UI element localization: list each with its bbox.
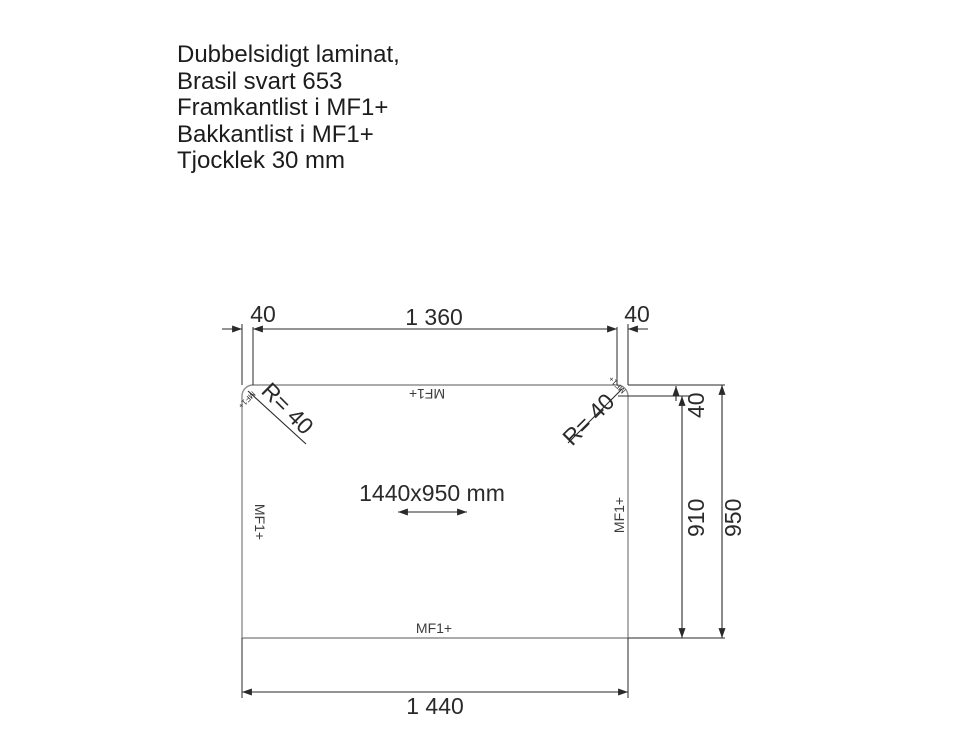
dim-top-width-label: 1 360: [405, 304, 463, 330]
drawing-sheet: Dubbelsidigt laminat, Brasil svart 653 F…: [0, 0, 960, 735]
corner-left-band-mark: MF1+: [236, 389, 257, 410]
edge-band-right-label: MF1+: [611, 497, 627, 533]
technical-drawing: 40 1 360 40 40 910 950 1 440 1440x950 mm…: [0, 0, 960, 735]
dim-910-label: 910: [683, 499, 709, 537]
radius-left-label: R= 40: [257, 377, 319, 439]
dim-950-label: 950: [720, 499, 746, 537]
dim-right-40-label: 40: [683, 392, 709, 418]
dim-bottom-width-label: 1 440: [406, 693, 464, 719]
edge-band-bottom-label: MF1+: [416, 620, 452, 636]
edge-band-top-label: MF1+: [409, 386, 445, 402]
panel-size-label: 1440x950 mm: [359, 480, 505, 506]
dim-top-right-40-label: 40: [624, 301, 650, 327]
dim-top-left-40-label: 40: [250, 301, 276, 327]
edge-band-left-label: MF1+: [252, 504, 268, 540]
radius-right-label: R= 40: [557, 388, 619, 450]
